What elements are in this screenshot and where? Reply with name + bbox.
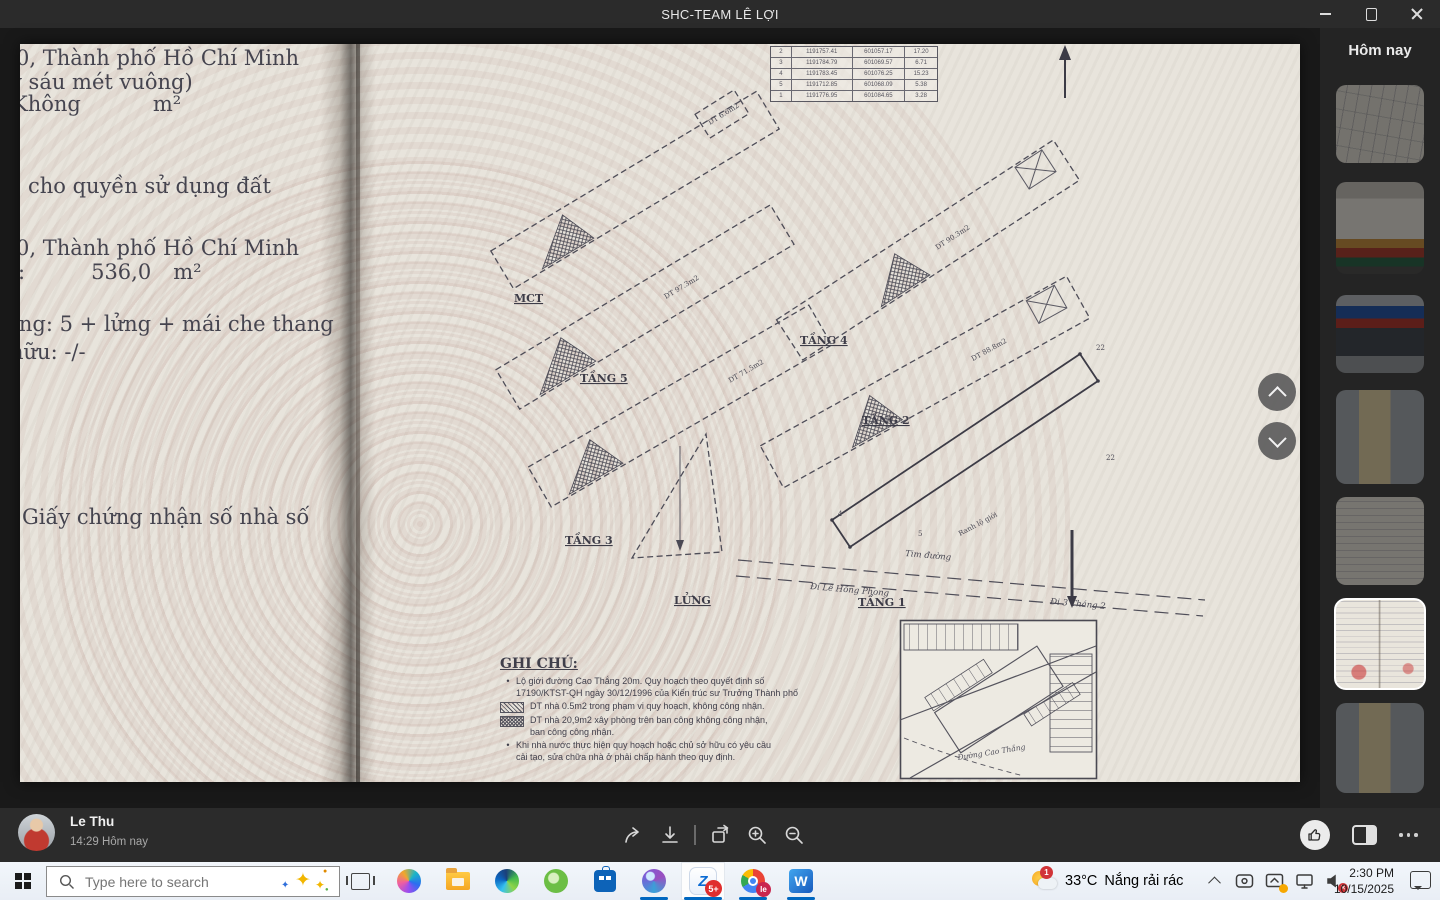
zoom-out-icon xyxy=(783,824,805,846)
svg-text:TẦNG 2: TẦNG 2 xyxy=(862,412,910,427)
rotate-button[interactable] xyxy=(707,822,733,848)
tray-overflow-button[interactable] xyxy=(1202,869,1226,893)
chevron-up-icon xyxy=(1268,386,1286,404)
svg-text:DT 97.3m2: DT 97.3m2 xyxy=(663,274,701,301)
svg-text:MCT: MCT xyxy=(514,292,544,305)
share-button[interactable] xyxy=(620,822,646,848)
edge-button[interactable] xyxy=(493,867,521,895)
task-view-icon xyxy=(351,873,370,890)
photo-stage: 0, Thành phố Hồ Chí Minh y sáu mét vuông… xyxy=(0,28,1320,808)
screen-share-tray-icon[interactable] xyxy=(1262,869,1286,893)
notes-title: GHI CHÚ: xyxy=(500,656,860,672)
svg-text:Ranh lộ giới: Ranh lộ giới xyxy=(957,510,999,537)
svg-text:22: 22 xyxy=(1096,344,1105,352)
svg-text:TẦNG 4: TẦNG 4 xyxy=(800,332,848,347)
thumbs-up-icon xyxy=(1307,827,1323,843)
coccoc-icon xyxy=(544,869,568,893)
screen-cast-tray-icon[interactable] xyxy=(1232,869,1256,893)
zoom-in-button[interactable] xyxy=(744,822,770,848)
sidebar-date-header: Hôm nay xyxy=(1320,42,1440,59)
svg-text:TẦNG 3: TẦNG 3 xyxy=(565,532,613,547)
sender-avatar xyxy=(18,814,55,851)
site-location-map: Đường Cao Thắng xyxy=(900,621,1097,779)
microsoft-store-button[interactable] xyxy=(591,867,619,895)
thumbnail-building-photo[interactable] xyxy=(1336,182,1424,274)
scanned-document-image: 0, Thành phố Hồ Chí Minh y sáu mét vuông… xyxy=(20,44,1300,782)
share-status-dot xyxy=(1279,884,1288,893)
like-button[interactable] xyxy=(1300,820,1330,850)
next-photo-button[interactable] xyxy=(1258,422,1296,460)
folder-icon xyxy=(446,872,470,890)
chevron-down-icon xyxy=(1268,429,1286,447)
weather-condition: Nắng rải rác xyxy=(1104,873,1183,889)
minimize-icon xyxy=(1320,13,1331,15)
zalo-image-viewer-window: SHC-TEAM LÊ LỢI 0, Thành phố Hồ Chí Minh… xyxy=(0,0,1440,900)
ghi-chu-notes: GHI CHÚ: •Lộ giới đường Cao Thắng 20m. Q… xyxy=(500,656,860,763)
svg-text:DT 90.3m2: DT 90.3m2 xyxy=(934,223,971,251)
message-timestamp: 14:29 Hôm nay xyxy=(70,836,148,848)
svg-text:4: 4 xyxy=(838,510,843,518)
chevron-up-icon xyxy=(1208,876,1221,889)
zoom-in-icon xyxy=(746,824,768,846)
weather-temp: 33°C xyxy=(1065,873,1097,889)
more-options-button[interactable] xyxy=(1399,833,1418,837)
svg-text:DT 6.6m2: DT 6.6m2 xyxy=(707,102,741,127)
windows-taskbar: ✦ ✦ ✦ ● ● Z 5+ le W xyxy=(0,862,1440,900)
copilot-button[interactable] xyxy=(395,867,423,895)
taskbar-search[interactable]: ✦ ✦ ✦ ● ● xyxy=(46,866,340,897)
edge-icon xyxy=(495,869,519,893)
street-centerlines: Tim đường Đi Lê Hồng Phong Đi 3 Tháng 2 xyxy=(736,530,1205,616)
previous-photo-button[interactable] xyxy=(1258,373,1296,411)
copilot-icon xyxy=(397,869,421,893)
svg-text:5: 5 xyxy=(918,530,922,538)
svg-text:TẦNG 5: TẦNG 5 xyxy=(580,370,628,385)
crosshatch-legend-swatch xyxy=(500,716,524,727)
zalo-notification-badge: 5+ xyxy=(705,880,722,897)
sidebar-toggle-icon xyxy=(1366,827,1375,843)
viewer-toolbar: Le Thu 14:29 Hôm nay xyxy=(0,808,1440,862)
close-button[interactable] xyxy=(1394,0,1440,28)
cast-icon xyxy=(1235,873,1254,889)
taskbar-clock[interactable]: 2:30 PM 10/15/2025 xyxy=(1322,865,1394,897)
close-icon xyxy=(1411,8,1423,20)
svg-text:LỬNG: LỬNG xyxy=(674,592,711,607)
toggle-sidebar-button[interactable] xyxy=(1352,825,1377,845)
task-view-button[interactable] xyxy=(346,867,374,895)
thumbnail-storefront-photo[interactable] xyxy=(1336,295,1424,373)
share-icon xyxy=(622,824,644,846)
plan-mct: MCT xyxy=(491,91,779,305)
bing-sparkle-icon: ✦ ✦ ✦ ● ● xyxy=(273,869,329,894)
maximize-button[interactable] xyxy=(1348,0,1394,28)
thumbnail-sketch-plan[interactable] xyxy=(1336,85,1424,163)
weather-alert-badge: 1 xyxy=(1040,866,1053,879)
sender-name: Le Thu xyxy=(70,814,114,829)
windows-logo-icon xyxy=(15,873,30,888)
weather-icon: 1 xyxy=(1032,869,1058,893)
minimize-button[interactable] xyxy=(1302,0,1348,28)
start-button[interactable] xyxy=(10,869,36,893)
window-title: SHC-TEAM LÊ LỢI xyxy=(0,7,1440,22)
svg-text:Tim đường: Tim đường xyxy=(905,548,952,563)
hatch-legend-swatch xyxy=(500,702,524,713)
title-bar: SHC-TEAM LÊ LỢI xyxy=(0,0,1440,28)
file-explorer-button[interactable] xyxy=(444,867,472,895)
word-icon: W xyxy=(789,869,813,893)
word-button[interactable]: W xyxy=(787,867,815,895)
coccoc-button[interactable] xyxy=(542,867,570,895)
clock-date: 10/15/2025 xyxy=(1322,881,1394,897)
toolbar-divider xyxy=(694,825,696,845)
download-button[interactable] xyxy=(657,822,683,848)
search-icon xyxy=(59,874,75,890)
plan-small-parcel: DT 6.6m2 xyxy=(695,90,749,138)
maximize-icon xyxy=(1366,8,1377,21)
photos-app-button[interactable] xyxy=(640,867,668,895)
download-icon xyxy=(659,824,681,846)
svg-text:DT 88.8m2: DT 88.8m2 xyxy=(970,337,1008,363)
zalo-button[interactable]: Z 5+ xyxy=(689,867,717,895)
weather-widget[interactable]: 1 33°C Nắng rải rác xyxy=(1032,862,1183,900)
plan-tang4: DT 90.3m2 TẦNG 4 xyxy=(777,140,1080,360)
north-arrow xyxy=(1059,45,1071,98)
zoom-out-button[interactable] xyxy=(781,822,807,848)
thumbnail-building-photo-2[interactable] xyxy=(1336,703,1424,793)
svg-text:Đi 3 Tháng 2: Đi 3 Tháng 2 xyxy=(1049,596,1106,612)
chrome-profile-badge: le xyxy=(756,882,771,897)
thumbnail-sidebar: Hôm nay xyxy=(1320,28,1440,808)
plan-lung: LỬNG xyxy=(632,434,722,607)
thumbnail-document-page[interactable] xyxy=(1336,497,1424,585)
svg-text:Đi Lê Hồng Phong: Đi Lê Hồng Phong xyxy=(809,581,890,599)
store-icon xyxy=(594,870,616,892)
svg-text:DT 71.5m2: DT 71.5m2 xyxy=(727,358,765,385)
thumbnail-selected-certificate[interactable] xyxy=(1334,598,1426,690)
chrome-button[interactable]: le xyxy=(739,867,767,895)
rotate-icon xyxy=(709,824,731,846)
photos-icon xyxy=(642,869,666,893)
action-center-button[interactable] xyxy=(1410,871,1431,889)
clock-time: 2:30 PM xyxy=(1322,865,1394,881)
thumbnail-tall-building-photo[interactable] xyxy=(1336,390,1424,484)
network-tray-icon[interactable] xyxy=(1292,869,1316,893)
plan-tang5: DT 97.3m2 TẦNG 5 xyxy=(496,205,794,409)
svg-text:22: 22 xyxy=(1106,454,1115,462)
monitor-icon xyxy=(1295,873,1314,889)
